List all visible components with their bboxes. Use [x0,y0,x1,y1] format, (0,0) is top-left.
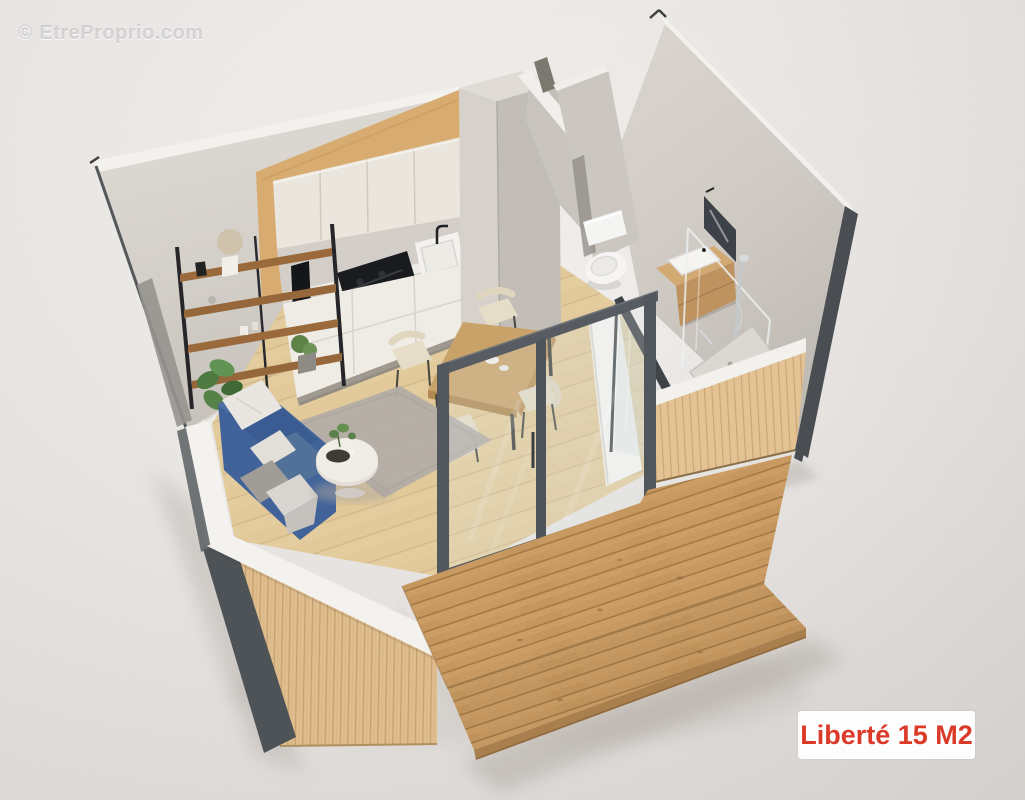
model-name-badge: Liberté 15 M2 [798,711,975,759]
door-right-stile [644,292,656,510]
door-glass-pane [450,342,536,575]
tray [326,450,350,463]
door-left-stile [437,362,449,581]
dried-plant [217,229,243,255]
floorplan-render-svg [0,0,1025,800]
door-glass-pane [546,306,644,542]
screenshot-root: © EtreProprio.com Liberté 15 M2 [0,0,1025,800]
door-center-stile [536,338,546,545]
white-vase [222,255,238,277]
model-name-label: Liberté 15 M2 [800,722,973,749]
watermark: © EtreProprio.com [18,22,204,45]
